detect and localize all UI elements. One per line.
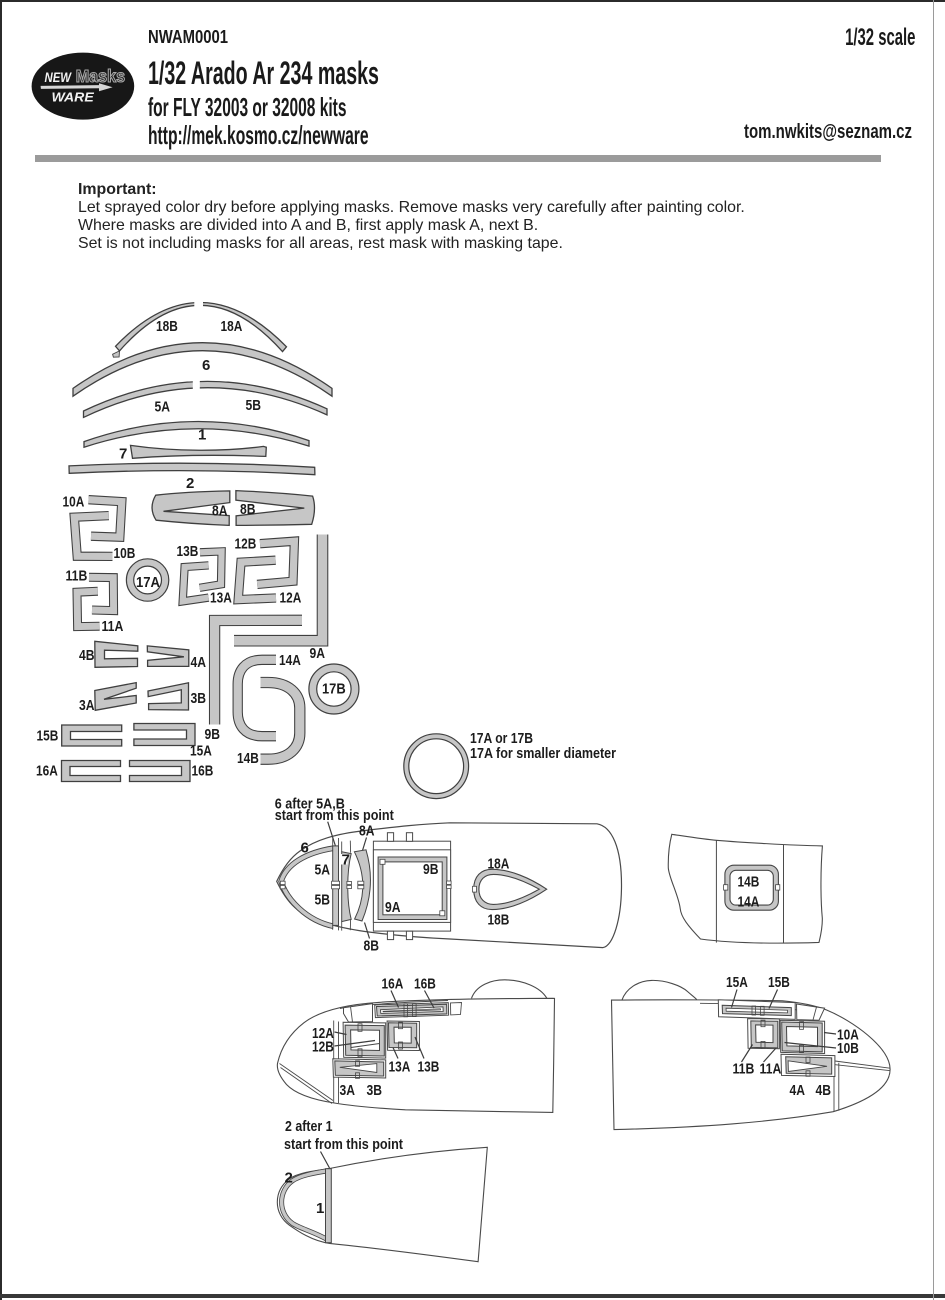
svg-text:8A: 8A	[359, 823, 375, 840]
svg-text:11B: 11B	[733, 1061, 755, 1078]
svg-text:18A: 18A	[488, 856, 510, 873]
svg-text:12A: 12A	[280, 590, 302, 607]
svg-text:5B: 5B	[315, 892, 331, 909]
svg-text:3A: 3A	[79, 697, 95, 714]
svg-text:3B: 3B	[367, 1082, 383, 1099]
svg-text:14B: 14B	[237, 750, 259, 767]
svg-text:18B: 18B	[156, 318, 178, 335]
svg-text:8A: 8A	[212, 503, 228, 520]
svg-text:18A: 18A	[221, 318, 243, 335]
svg-text:17A for smaller diameter: 17A for smaller diameter	[470, 745, 616, 762]
svg-text:9A: 9A	[310, 645, 326, 662]
svg-text:17B: 17B	[322, 681, 346, 698]
svg-text:13B: 13B	[177, 543, 199, 560]
svg-text:18B: 18B	[488, 912, 510, 929]
svg-text:15B: 15B	[768, 974, 790, 991]
svg-text:7: 7	[119, 446, 127, 463]
svg-text:16A: 16A	[382, 976, 404, 993]
svg-text:10A: 10A	[63, 494, 85, 511]
svg-text:4B: 4B	[79, 647, 95, 664]
svg-text:2 after 1: 2 after 1	[285, 1118, 333, 1135]
svg-text:16A: 16A	[36, 763, 58, 780]
svg-text:4B: 4B	[816, 1082, 832, 1099]
svg-text:13A: 13A	[210, 590, 232, 607]
svg-text:11B: 11B	[66, 568, 88, 585]
svg-text:14A: 14A	[279, 652, 301, 669]
svg-text:15A: 15A	[190, 743, 212, 760]
svg-text:10B: 10B	[837, 1040, 859, 1057]
svg-text:3B: 3B	[191, 690, 207, 707]
svg-text:1: 1	[198, 427, 206, 444]
svg-text:14B: 14B	[738, 874, 760, 891]
svg-text:3A: 3A	[340, 1082, 356, 1099]
svg-text:5B: 5B	[246, 397, 262, 414]
svg-text:9A: 9A	[385, 899, 401, 916]
svg-text:start from this point: start from this point	[284, 1136, 403, 1153]
svg-text:17A: 17A	[136, 574, 160, 591]
svg-text:2: 2	[186, 475, 194, 492]
svg-text:start from this point: start from this point	[275, 807, 394, 824]
svg-text:13B: 13B	[418, 1059, 440, 1076]
svg-text:6: 6	[301, 840, 309, 857]
svg-text:8B: 8B	[364, 938, 380, 955]
svg-text:14A: 14A	[738, 894, 760, 911]
svg-text:2: 2	[285, 1170, 293, 1187]
svg-text:6: 6	[202, 357, 210, 374]
svg-text:5A: 5A	[315, 862, 331, 879]
svg-text:10B: 10B	[114, 545, 136, 562]
svg-text:4A: 4A	[790, 1082, 806, 1099]
svg-text:12B: 12B	[312, 1039, 334, 1056]
svg-text:1: 1	[316, 1200, 324, 1217]
svg-text:11A: 11A	[760, 1061, 782, 1078]
svg-text:4A: 4A	[191, 654, 207, 671]
svg-text:15A: 15A	[726, 974, 748, 991]
svg-text:16B: 16B	[192, 763, 214, 780]
svg-text:15B: 15B	[37, 728, 59, 745]
svg-text:5A: 5A	[155, 399, 171, 416]
svg-text:12B: 12B	[235, 536, 257, 553]
svg-text:9B: 9B	[205, 726, 221, 743]
svg-text:13A: 13A	[389, 1059, 411, 1076]
svg-text:8B: 8B	[240, 501, 256, 518]
svg-text:9B: 9B	[423, 861, 439, 878]
svg-text:16B: 16B	[414, 976, 436, 993]
svg-text:7: 7	[342, 851, 350, 868]
svg-text:11A: 11A	[102, 618, 124, 635]
